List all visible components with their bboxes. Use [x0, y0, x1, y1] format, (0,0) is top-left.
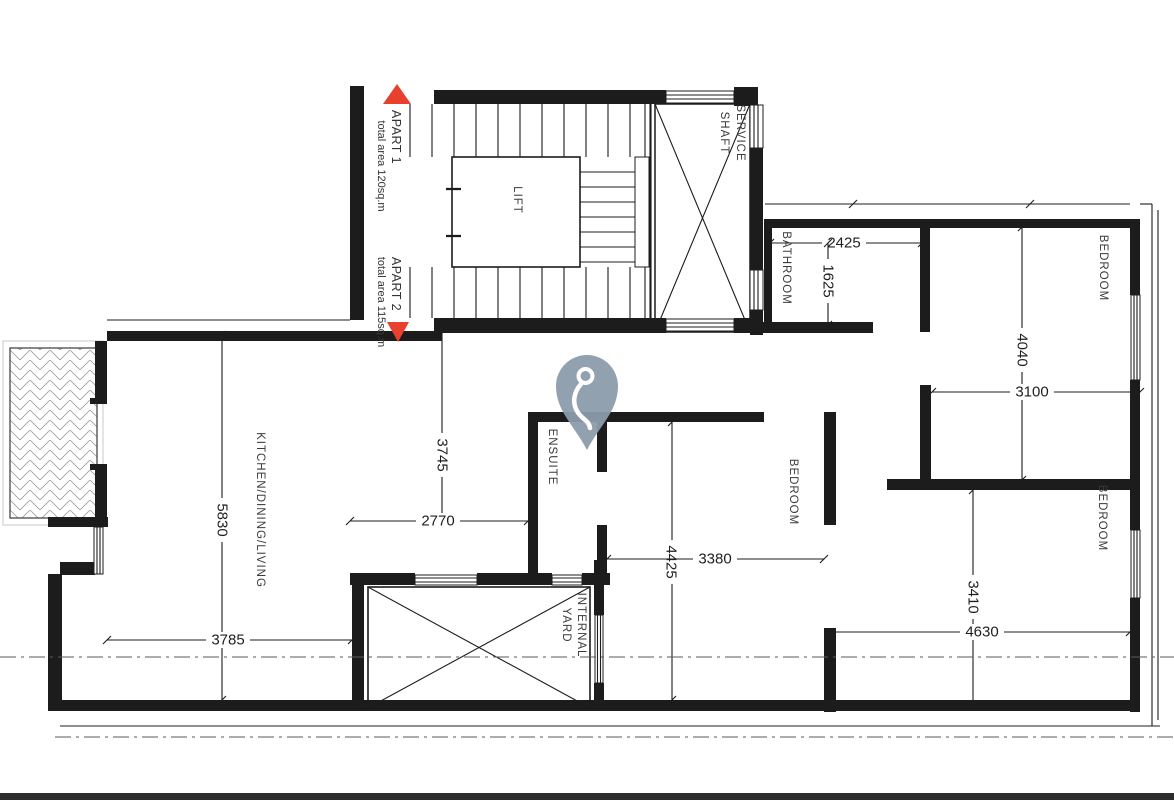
dimension-bedroom-bottom-depth: 3410: [965, 486, 982, 710]
dim-4425: 4425: [663, 545, 680, 578]
dimension-hall-width: 2770: [346, 513, 532, 530]
dim-2425: 2425: [827, 235, 860, 252]
floor-plan-drawing: 2425 1625 4040 3100 3745 2770: [0, 0, 1174, 800]
balcony-hatch: [10, 348, 97, 518]
room-label-lift: LIFT: [511, 186, 523, 214]
room-label-bedroom-bottom: BEDROOM: [1096, 485, 1108, 551]
room-label-shaft: SHAFT: [718, 112, 730, 155]
room-label-bathroom: BATHROOM: [780, 231, 792, 305]
dimension-bedroom-bottom-width: 4630: [826, 624, 1134, 641]
dimension-hall-depth: 3745: [434, 329, 451, 525]
apart-2-area: total area 115sq.m: [375, 257, 387, 347]
dimension-kitchen-width: 3785: [103, 632, 356, 649]
internal-yard-box: [368, 587, 590, 708]
dim-3785: 3785: [211, 632, 244, 649]
room-label-yard: YARD: [560, 607, 572, 642]
drawing-bottom-edge: [0, 793, 1174, 800]
apart-1-triangle-icon: [383, 84, 411, 104]
dim-2770: 2770: [421, 513, 454, 530]
room-label-bedroom-center: BEDROOM: [787, 459, 799, 525]
dimension-bathroom-depth: 1625: [820, 239, 837, 329]
dim-3410: 3410: [965, 580, 982, 613]
apart-1-label: APART 1: [389, 110, 403, 164]
apart-2-label: APART 2: [389, 257, 403, 311]
dim-5830: 5830: [214, 503, 231, 536]
room-label-kitchen: KITCHEN/DINING/LIVING: [254, 432, 266, 588]
dim-3100: 3100: [1015, 384, 1048, 401]
room-label-ensuite: ENSUITE: [546, 429, 558, 486]
dim-3380: 3380: [698, 551, 731, 568]
room-label-service: SERVICE: [734, 104, 746, 161]
dimension-bedroom-top-width: 3100: [928, 384, 1144, 401]
dim-3745: 3745: [434, 438, 451, 471]
floor-plan-page: 2425 1625 4040 3100 3745 2770: [0, 0, 1174, 800]
room-label-bedroom-top: BEDROOM: [1097, 235, 1109, 301]
room-label-internal: INTERNAL: [575, 593, 587, 658]
dim-1625: 1625: [820, 264, 837, 297]
apart-1-area: total area 120sq.m: [375, 120, 387, 211]
map-pin-icon: [556, 355, 618, 450]
dimension-bedroom-top-depth: 4040: [1014, 223, 1031, 484]
dimension-bedroom-center-depth: 4425: [663, 418, 680, 704]
dim-4630: 4630: [965, 624, 998, 641]
dim-4040: 4040: [1014, 333, 1031, 366]
dimension-bedroom-center-width: 3380: [603, 551, 828, 568]
